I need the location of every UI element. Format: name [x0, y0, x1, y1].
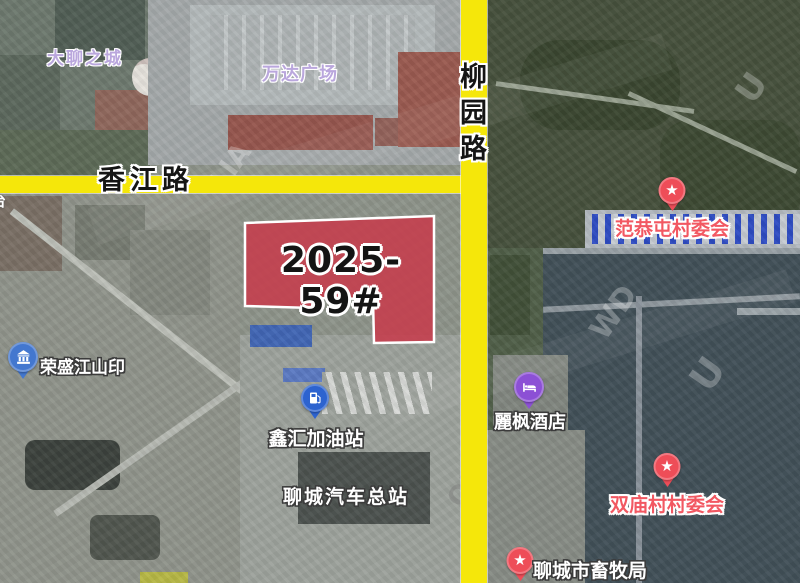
poi-pin-xumuju[interactable]: ★: [507, 547, 534, 581]
area-label-wanda-plaza: 万达广场: [262, 60, 338, 86]
star-icon: ★: [660, 459, 673, 474]
star-icon: ★: [513, 553, 526, 568]
poi-pin-hotel[interactable]: [514, 372, 544, 409]
poi-label-fangongtun[interactable]: 范恭屯村委会: [615, 214, 729, 241]
area-label-daliaozhicheng: 大聊之城: [47, 44, 123, 69]
parcel-label: 2025-59#: [248, 240, 434, 286]
gas-pump-icon: [307, 390, 323, 406]
poi-label-shuangmiao[interactable]: 双庙村村委会: [610, 490, 724, 517]
poi-label-xumuju[interactable]: 聊城市畜牧局: [533, 556, 647, 583]
poi-label-gas-station[interactable]: 鑫汇加油站: [268, 424, 363, 451]
poi-pin-fangongtun[interactable]: ★: [659, 177, 686, 211]
satellite-map[interactable]: LIA WD OR U U 香江路 柳园路 台 2025-59# 大聊之城 万达…: [0, 0, 800, 583]
bed-icon: [521, 379, 538, 396]
star-icon: ★: [665, 183, 678, 198]
poi-label-hotel[interactable]: 麗枫酒店: [494, 408, 566, 434]
bank-icon: [15, 349, 32, 366]
poi-pin-gas-station[interactable]: [301, 384, 329, 419]
poi-label-bus-station[interactable]: 聊城汽车总站: [283, 482, 409, 509]
poi-pin-rongsheng[interactable]: [8, 342, 38, 379]
poi-label-rongsheng[interactable]: 荣盛江山印: [40, 353, 125, 378]
poi-pin-shuangmiao[interactable]: ★: [654, 453, 681, 487]
